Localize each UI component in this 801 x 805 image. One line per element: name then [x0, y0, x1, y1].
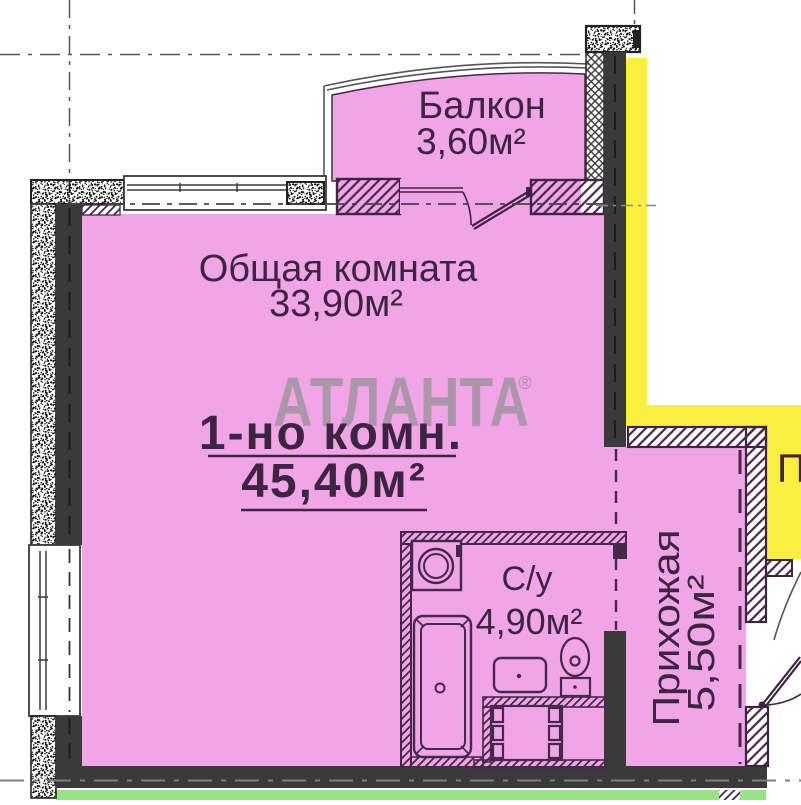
svg-text:4,90м²: 4,90м²: [476, 601, 583, 642]
svg-text:1-но комн.: 1-но комн.: [199, 407, 463, 460]
svg-text:5,50м²: 5,50м²: [681, 575, 723, 712]
svg-text:®: ®: [518, 373, 531, 393]
svg-text:45,40м²: 45,40м²: [241, 455, 427, 508]
svg-text:П: П: [777, 447, 801, 491]
svg-text:С/у: С/у: [502, 560, 553, 598]
svg-text:3,60м²: 3,60м²: [416, 121, 526, 162]
svg-text:33,90м²: 33,90м²: [269, 283, 403, 325]
